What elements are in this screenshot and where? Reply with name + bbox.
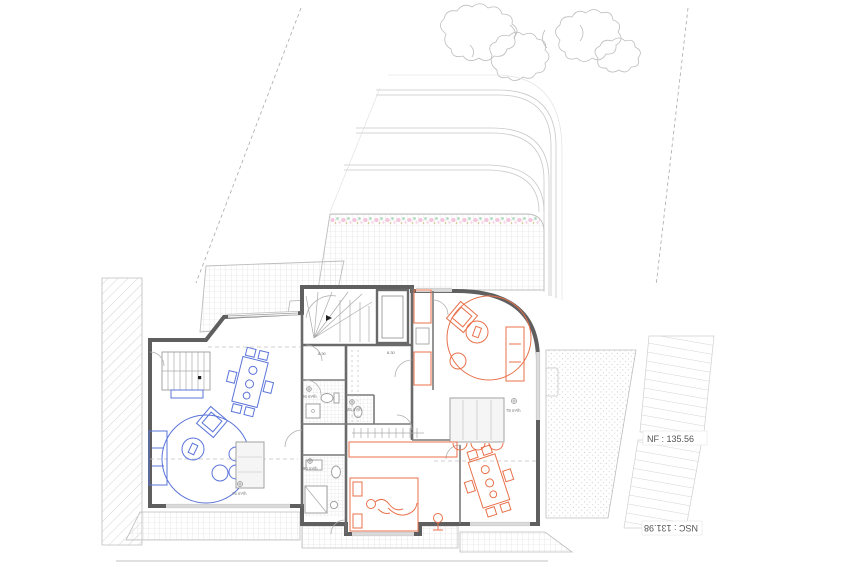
floor-plan-canvas: 75 m³/h 26 m³/h 26 m³/h 90 m³/h 78 m³/h … [0,0,850,567]
vent-symbol [307,387,312,392]
vent-symbol [237,481,242,486]
tree-canopy [440,4,640,81]
vent-symbol [308,459,313,464]
svg-text:90 m³/h: 90 m³/h [303,466,318,471]
vent-symbol [350,400,355,405]
wc-left [304,380,345,423]
floor-plan-drawing: 75 m³/h 26 m³/h 26 m³/h 90 m³/h 78 m³/h … [0,0,850,567]
vent-symbol [511,398,516,403]
kitchen-island-right [450,398,504,450]
svg-text:26 m³/h: 26 m³/h [302,394,317,399]
nf-level-label: NF : 135.56 [647,434,694,444]
svg-text:8.30: 8.30 [318,351,327,356]
svg-text:8.30: 8.30 [387,350,396,355]
elevator-shaft [377,290,408,343]
neighbor-wall-hatch-west [102,278,142,545]
nsc-level-label: NSC : 131.98 [644,523,698,533]
east-terrace-dotted [546,350,636,518]
svg-text:78 m³/h: 78 m³/h [506,408,521,413]
flower-bed-strip [330,215,540,224]
svg-text:26 m³/h: 26 m³/h [347,407,362,412]
svg-text:75 m³/h: 75 m³/h [232,491,247,496]
